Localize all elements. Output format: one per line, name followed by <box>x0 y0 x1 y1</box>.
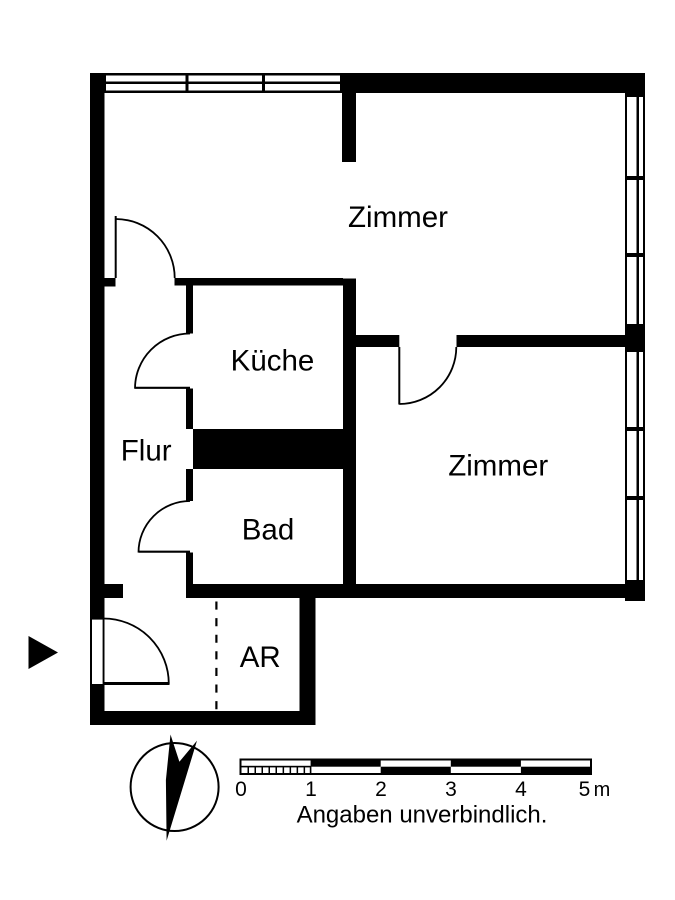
svg-text:Angaben unverbindlich.: Angaben unverbindlich. <box>297 802 548 829</box>
svg-text:1: 1 <box>305 778 317 801</box>
svg-text:3: 3 <box>445 778 457 801</box>
svg-text:m: m <box>594 779 611 801</box>
svg-text:2: 2 <box>375 778 387 801</box>
svg-text:Bad: Bad <box>242 513 295 546</box>
svg-text:Flur: Flur <box>121 435 172 468</box>
svg-text:Zimmer: Zimmer <box>348 201 448 234</box>
svg-text:AR: AR <box>240 641 281 674</box>
svg-text:Zimmer: Zimmer <box>448 449 548 482</box>
svg-text:4: 4 <box>515 778 527 801</box>
svg-text:5: 5 <box>579 778 591 801</box>
svg-text:0: 0 <box>235 778 247 801</box>
svg-text:Küche: Küche <box>231 345 315 378</box>
